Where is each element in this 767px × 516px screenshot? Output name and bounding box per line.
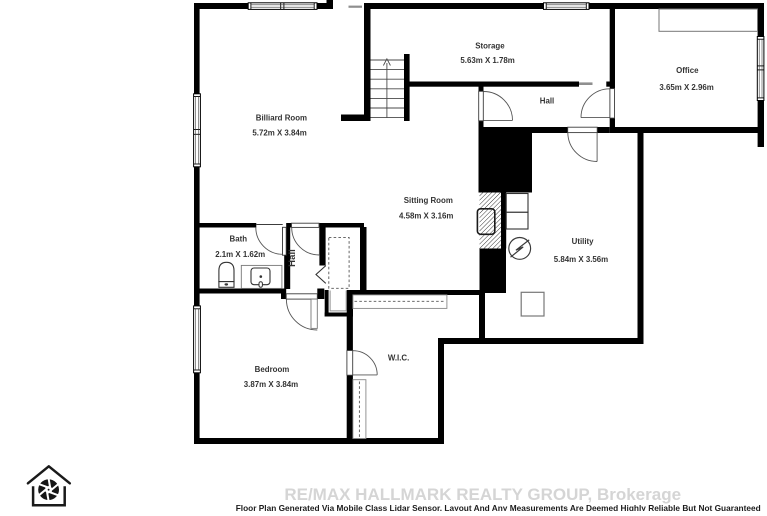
svg-text:5.63m X 1.78m: 5.63m X 1.78m [460, 56, 514, 65]
svg-text:Bath: Bath [230, 234, 248, 243]
svg-text:Bedroom: Bedroom [255, 365, 290, 374]
svg-text:Storage: Storage [475, 41, 505, 50]
svg-text:3.65m X 2.96m: 3.65m X 2.96m [659, 83, 713, 92]
svg-text:Hall: Hall [540, 96, 554, 105]
svg-text:3.87m X 3.84m: 3.87m X 3.84m [244, 380, 298, 389]
svg-text:5.84m X 3.56m: 5.84m X 3.56m [554, 255, 608, 264]
svg-text:Billiard Room: Billiard Room [256, 113, 307, 122]
svg-text:Office: Office [676, 66, 699, 75]
svg-text:Sitting Room: Sitting Room [404, 196, 453, 205]
svg-text:W.I.C.: W.I.C. [388, 353, 409, 362]
svg-text:2.1m X 1.62m: 2.1m X 1.62m [215, 250, 265, 259]
svg-text:4.58m X 3.16m: 4.58m X 3.16m [399, 211, 453, 220]
svg-text:RE/MAX HALLMARK REALTY GROUP,: RE/MAX HALLMARK REALTY GROUP, Brokerage [284, 485, 681, 504]
svg-text:5.72m X 3.84m: 5.72m X 3.84m [252, 129, 306, 138]
svg-text:Hall: Hall [287, 249, 298, 267]
svg-text:Floor Plan Generated Via Mobil: Floor Plan Generated Via Mobile Class Li… [236, 503, 761, 511]
svg-text:Utility: Utility [572, 237, 595, 246]
